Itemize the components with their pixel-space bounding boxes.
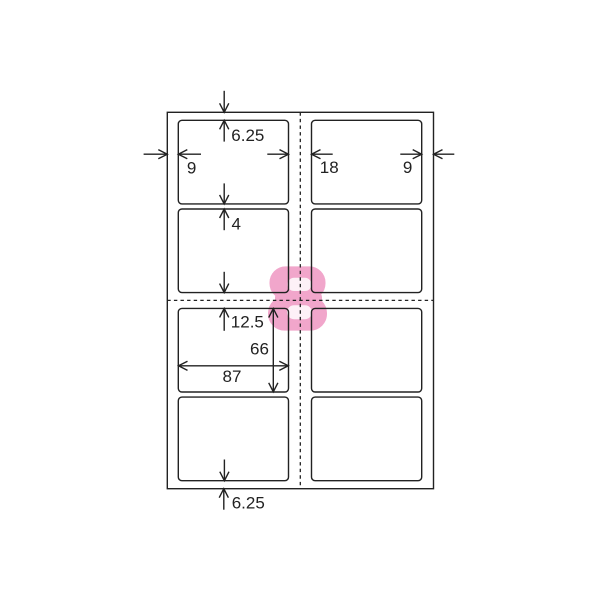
svg-text:9: 9	[403, 158, 412, 177]
svg-text:9: 9	[187, 159, 196, 178]
svg-text:12.5: 12.5	[231, 313, 264, 332]
svg-text:66: 66	[250, 339, 269, 358]
svg-text:4: 4	[232, 214, 241, 233]
svg-text:6.25: 6.25	[231, 126, 264, 145]
svg-text:6.25: 6.25	[232, 494, 265, 513]
svg-text:18: 18	[320, 158, 339, 177]
svg-text:87: 87	[223, 367, 242, 386]
